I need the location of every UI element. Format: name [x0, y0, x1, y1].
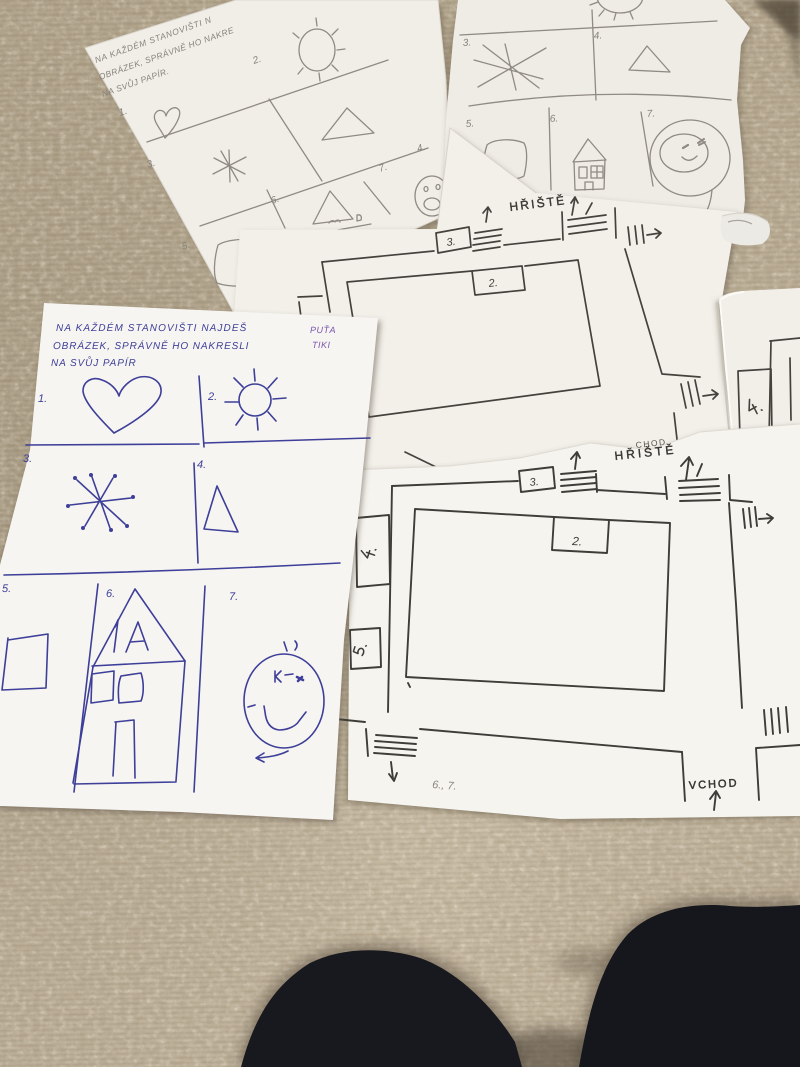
- svg-text:2.: 2.: [207, 391, 217, 403]
- svg-text:7.: 7.: [229, 591, 238, 603]
- svg-text:NA SVŮJ PAPÍR: NA SVŮJ PAPÍR: [51, 356, 137, 369]
- svg-text:6., 7.: 6., 7.: [432, 779, 457, 793]
- svg-text:7.: 7.: [646, 108, 655, 120]
- svg-text:2.: 2.: [487, 277, 499, 290]
- svg-text:PUŤA: PUŤA: [310, 325, 336, 335]
- svg-text:5.: 5.: [465, 118, 474, 130]
- svg-text:6.: 6.: [549, 113, 558, 125]
- svg-text:3.: 3.: [23, 453, 32, 465]
- svg-text:6.: 6.: [106, 588, 115, 600]
- svg-text:2.: 2.: [571, 534, 583, 549]
- svg-text:3.: 3.: [446, 236, 457, 249]
- svg-text:OBRÁZEK, SPRÁVNĚ HO NAKRESLI: OBRÁZEK, SPRÁVNĚ HO NAKRESLI: [53, 340, 249, 352]
- svg-text:5.: 5.: [2, 583, 11, 595]
- svg-text:4.: 4.: [593, 30, 602, 42]
- svg-text:3.: 3.: [462, 37, 471, 49]
- svg-text:NA KAŽDÉM STANOVIŠTI NAJDEŠ: NA KAŽDÉM STANOVIŠTI NAJDEŠ: [56, 322, 247, 334]
- svg-text:TIKI: TIKI: [312, 340, 331, 350]
- svg-text:3.: 3.: [529, 476, 540, 489]
- svg-text:4.: 4.: [197, 459, 206, 471]
- svg-text:1.: 1.: [38, 393, 47, 405]
